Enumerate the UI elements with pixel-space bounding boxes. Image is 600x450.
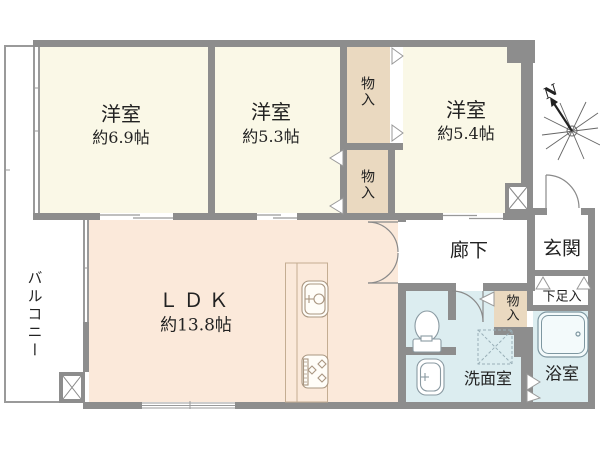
- bathtub-icon: [538, 312, 588, 357]
- closet-hall-label: 物入: [505, 294, 518, 322]
- toilet-icon: [413, 311, 441, 352]
- bathroom-label: 浴室: [545, 367, 579, 384]
- bedroom-center-size: 約5.3帖: [242, 129, 299, 145]
- bedroom-center-label: 洋室: [251, 102, 291, 122]
- ldk-label: ＬＤＫ: [159, 290, 234, 310]
- pillar-box-east: [505, 183, 531, 213]
- washroom-label: 洗面室: [464, 371, 512, 387]
- washroom-door-arc: [452, 291, 483, 322]
- ldk-double-door-arcs: [368, 222, 398, 283]
- washer-pan-icon: [478, 330, 512, 364]
- compass-rose: [542, 97, 600, 160]
- kitchen-sink-icon: [302, 281, 328, 317]
- balcony-label: バルコニー: [27, 270, 42, 360]
- pillar-box-west: [59, 372, 85, 403]
- entrance-door-arc: [546, 175, 579, 208]
- bedroom-west-label: 洋室: [101, 104, 141, 124]
- shoe-cabinet-label: 下足入: [542, 291, 581, 304]
- bedroom-west-size: 約6.9帖: [92, 130, 149, 146]
- bedroom-east-label: 洋室: [446, 100, 486, 120]
- ldk-size: 約13.8帖: [160, 318, 232, 335]
- entrance-label: 玄関: [543, 240, 581, 259]
- closet-center-label: 物入: [360, 169, 374, 201]
- basin-icon: [417, 359, 444, 395]
- closet-north-label: 物入: [360, 76, 374, 108]
- stove-icon: [302, 355, 328, 388]
- floorplan: 洋室 約6.9帖 洋室 約5.3帖 洋室 約5.4帖 ＬＤＫ 約13.8帖 廊下…: [0, 0, 600, 450]
- bedroom-east-size: 約5.4帖: [437, 126, 494, 142]
- hallway-label: 廊下: [450, 242, 488, 261]
- sliding-door-symbols: [100, 215, 503, 219]
